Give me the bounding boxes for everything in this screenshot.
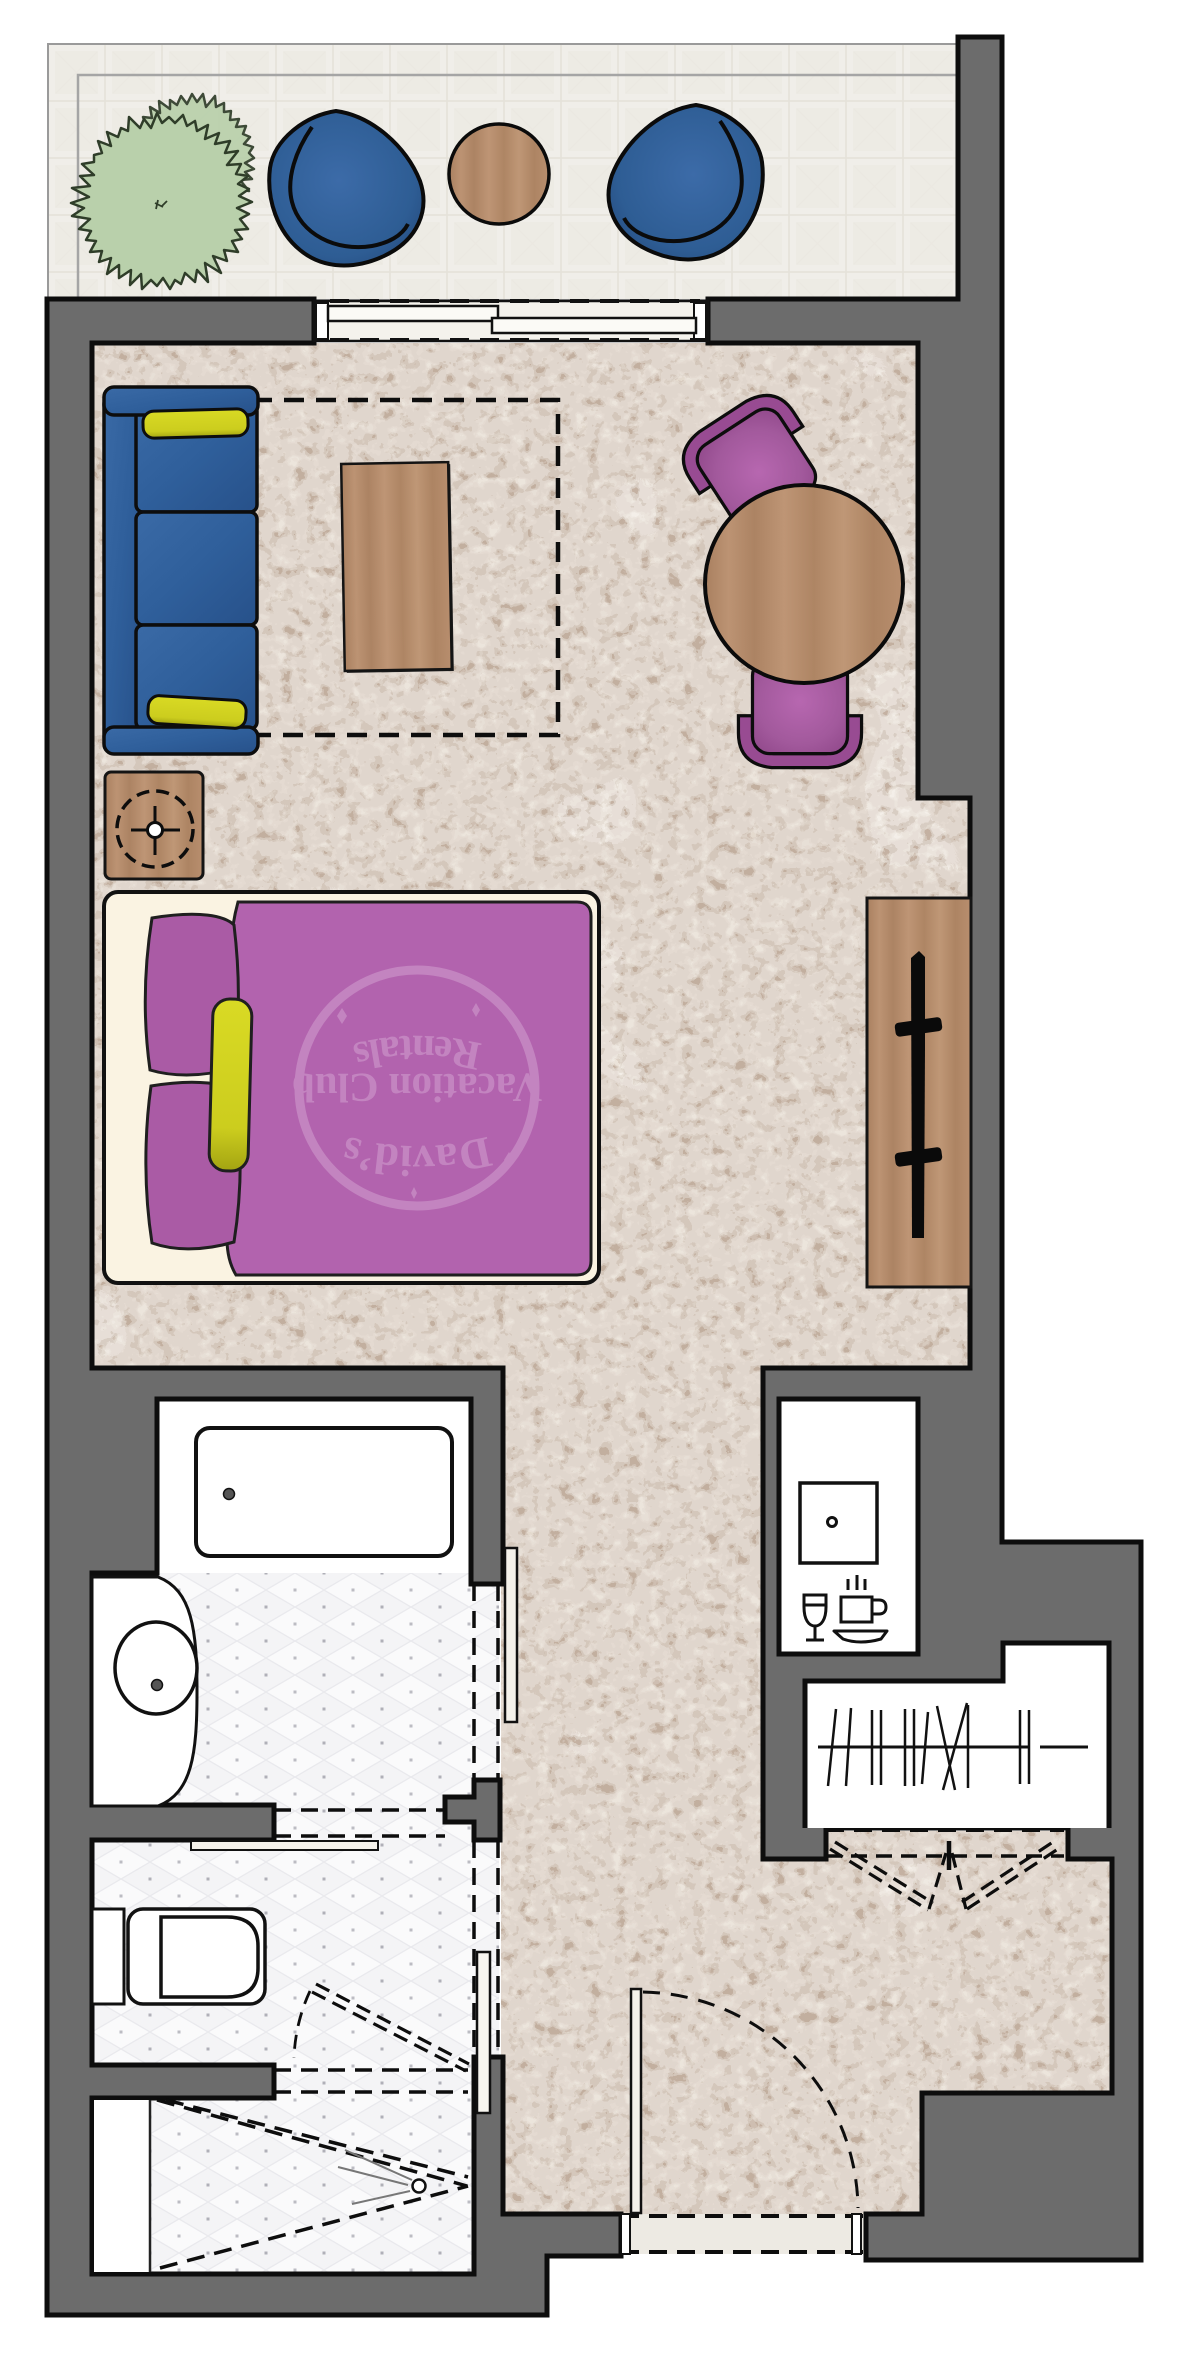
svg-text:Rentals: Rentals xyxy=(350,1027,485,1081)
